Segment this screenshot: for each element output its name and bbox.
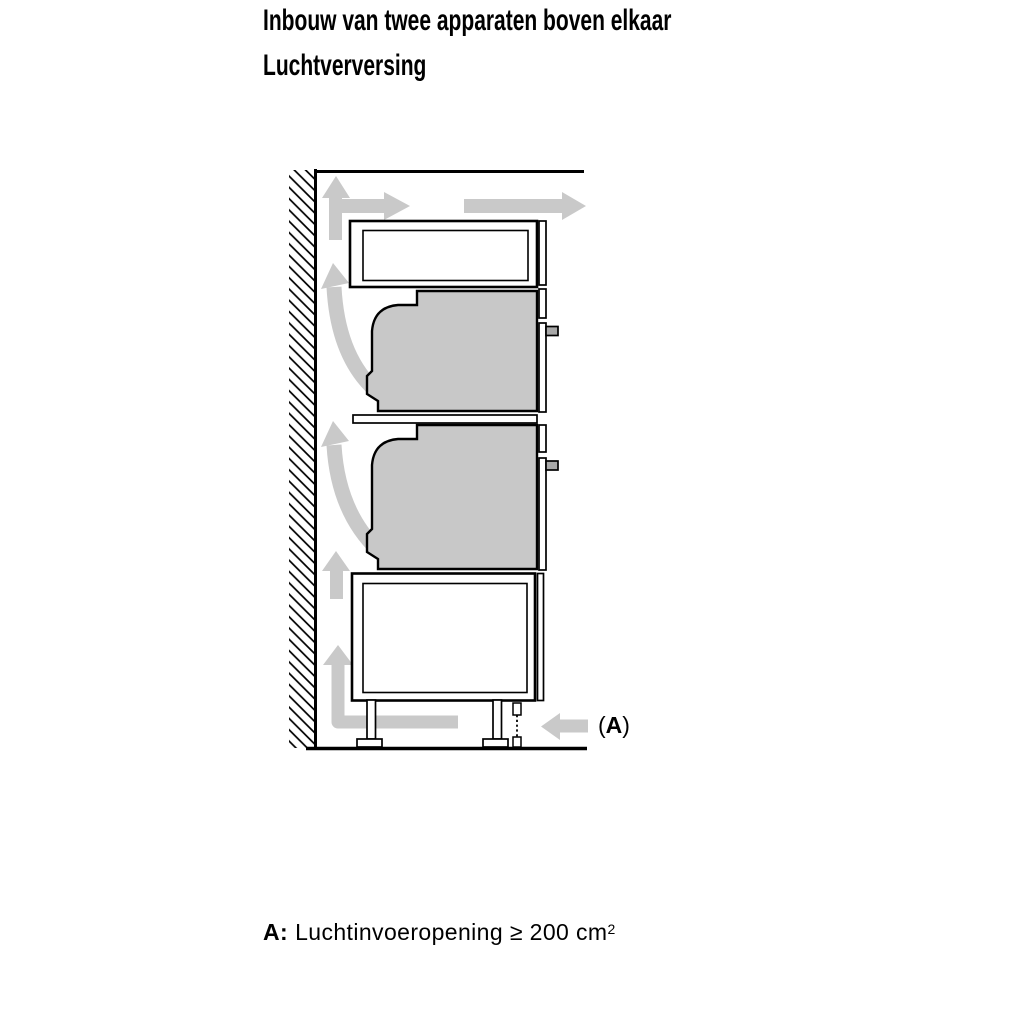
air-inlet-label-a: (A): [598, 712, 630, 738]
airflow-right-arrow-exit: [464, 192, 586, 220]
intermediate-shelf: [353, 415, 537, 423]
cabinet-foot-right: [483, 739, 508, 747]
footnote-prefix: A:: [263, 919, 288, 945]
upper-oven-handle: [546, 327, 558, 336]
label-a-letter: A: [606, 712, 623, 738]
upper-oven-fascia: [539, 289, 546, 318]
plinth-marker-top: [513, 703, 521, 715]
lower-oven-handle: [546, 461, 558, 470]
footnote-superscript: 2: [607, 921, 615, 937]
upper-oven-body: [367, 291, 537, 411]
airflow-up-arrow-mid: [322, 551, 350, 599]
base-cabinet-compartment: [352, 574, 535, 701]
lower-oven-fascia: [539, 425, 546, 452]
lower-oven-door: [539, 458, 546, 570]
label-a-close-paren: ): [622, 712, 630, 738]
footnote-body: Luchtinvoeropening ≥ 200 cm: [295, 919, 607, 945]
cabinet-foot-left: [357, 739, 382, 747]
base-cabinet-side-panel: [538, 574, 544, 701]
plinth-marker-bottom: [513, 737, 521, 747]
lower-oven-body: [367, 425, 537, 569]
airflow-inlet-arrow-a: [541, 713, 588, 740]
label-a-open-paren: (: [598, 712, 606, 738]
manual-page: Inbouw van twee apparaten boven elkaar L…: [0, 0, 1024, 1024]
upper-cabinet-compartment: [350, 221, 537, 287]
footnote-air-inlet: A:Luchtinvoeropening ≥ 200 cm2: [263, 916, 615, 945]
installation-ventilation-diagram: [0, 0, 1024, 1024]
cabinet-leg-left: [367, 700, 376, 739]
upper-oven-door: [539, 323, 546, 412]
wall-hatching: [289, 170, 314, 748]
cabinet-leg-right: [493, 700, 502, 739]
cabinet-side-panel-top: [539, 221, 546, 285]
